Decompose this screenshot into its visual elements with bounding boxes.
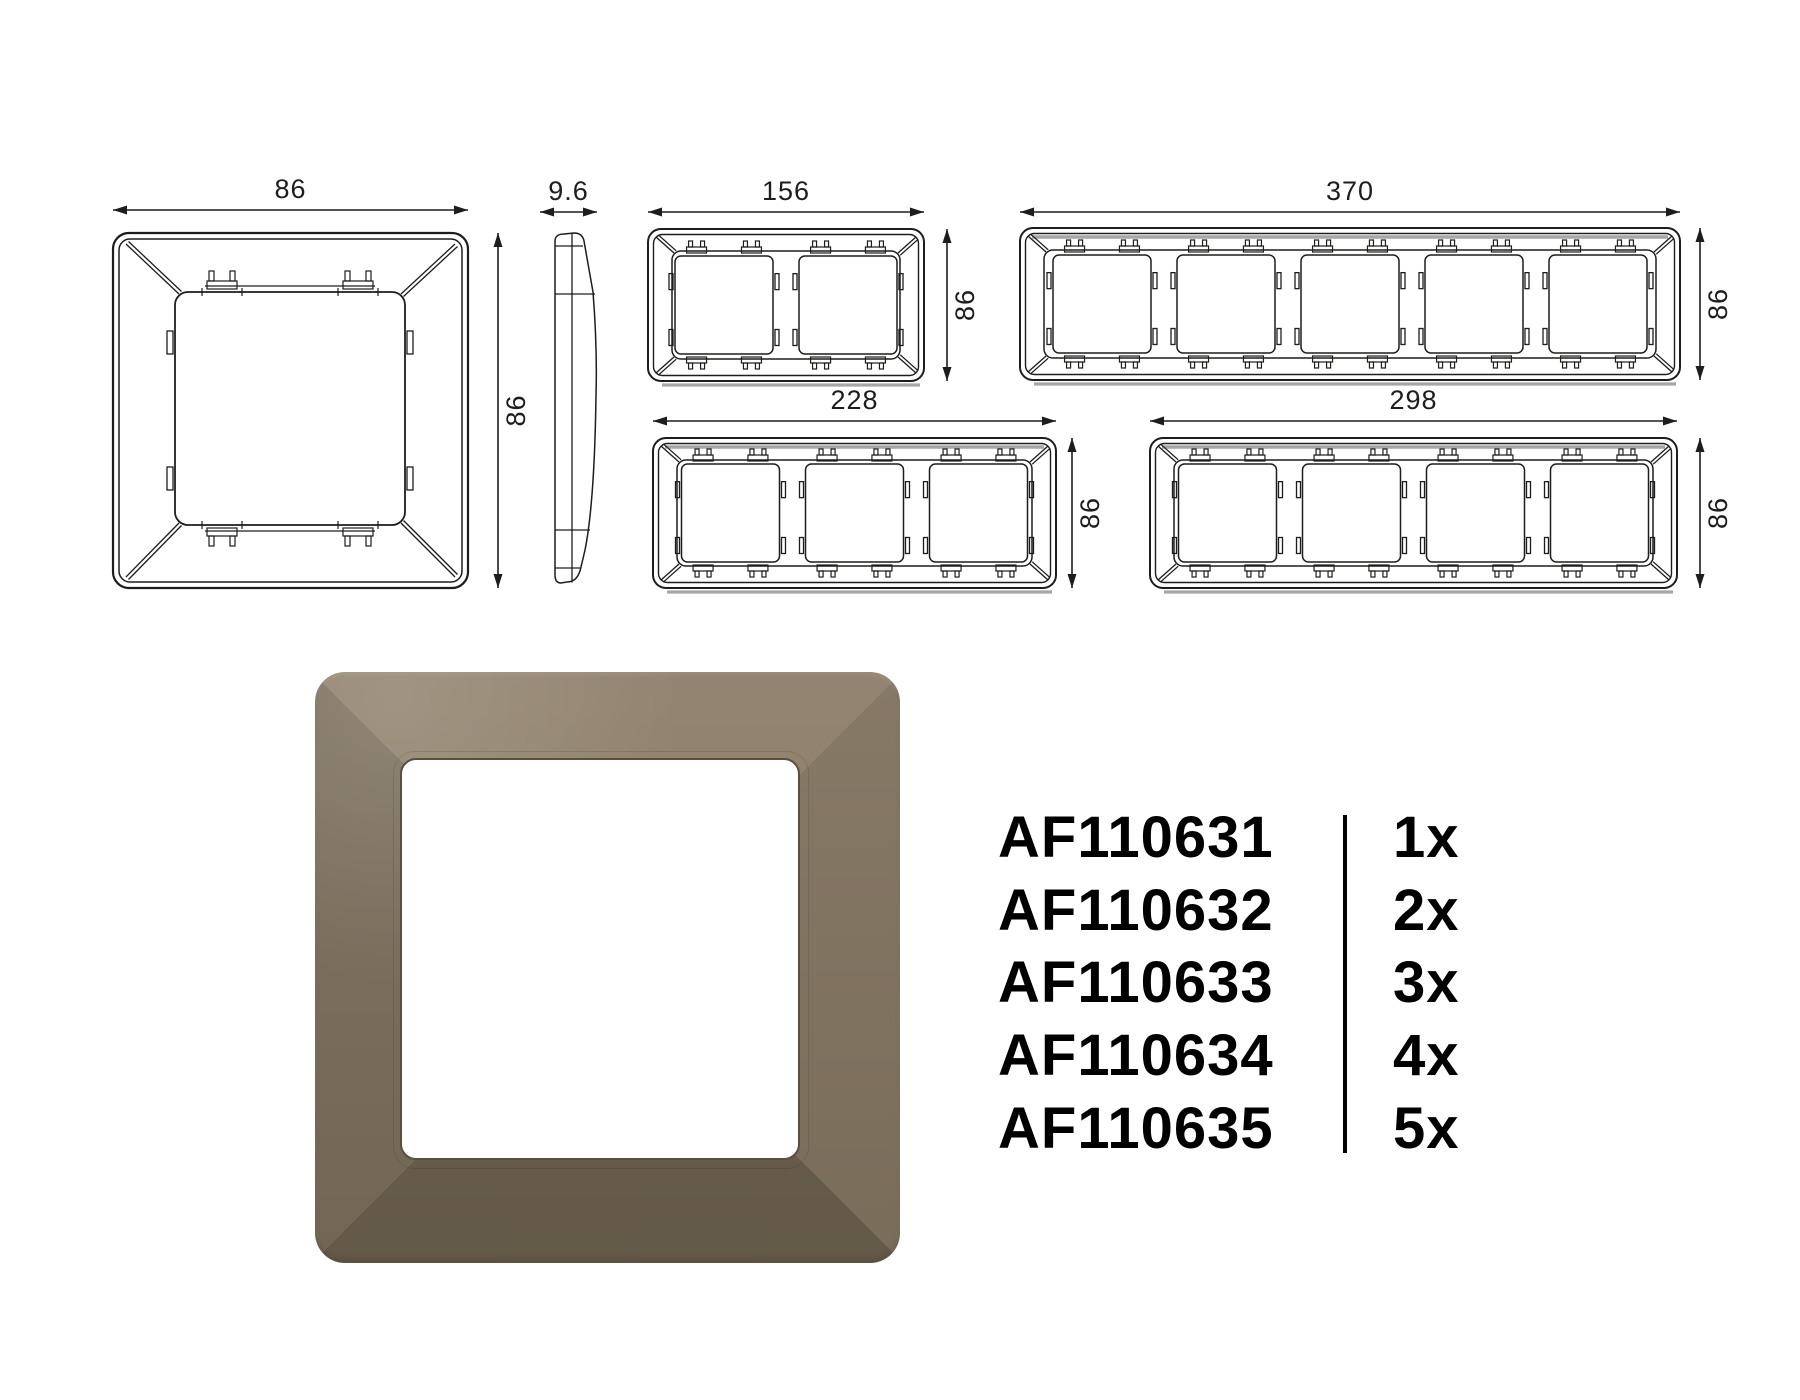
product-render-frame xyxy=(315,672,900,1263)
drawing-gang-4: 29886 xyxy=(1150,385,1733,592)
part-code: AF110632 xyxy=(998,877,1343,944)
drawing-profile-side: 9.6 xyxy=(540,176,597,583)
part-list-divider xyxy=(1343,815,1347,1153)
dimension-label: 86 xyxy=(1075,497,1105,529)
dimension-label: 370 xyxy=(1326,176,1374,206)
part-list-row: AF1106311x xyxy=(998,801,1558,874)
technical-drawings: 86869.615686370862288629886 xyxy=(0,0,1800,650)
part-code: AF110635 xyxy=(998,1095,1343,1162)
dimension-label: 86 xyxy=(1703,497,1733,529)
dimension-label: 228 xyxy=(830,385,878,415)
part-code: AF110631 xyxy=(998,804,1343,871)
part-list-row: AF1106355x xyxy=(998,1092,1558,1165)
dimension-label: 298 xyxy=(1389,385,1437,415)
part-quantity: 3x xyxy=(1343,949,1460,1016)
part-quantity: 1x xyxy=(1343,804,1460,871)
page: 86869.615686370862288629886 AF1106311xAF… xyxy=(0,0,1800,1400)
part-quantity: 2x xyxy=(1343,877,1460,944)
dimension-label: 86 xyxy=(1703,288,1733,320)
dimension-label: 86 xyxy=(950,289,980,321)
frame-window-opening xyxy=(400,758,800,1160)
part-quantity: 5x xyxy=(1343,1095,1460,1162)
dimension-label: 86 xyxy=(274,174,306,204)
drawing-gang-2: 15686 xyxy=(648,176,980,385)
part-list-row: AF1106322x xyxy=(998,874,1558,947)
dimension-label: 156 xyxy=(762,176,810,206)
part-code: AF110634 xyxy=(998,1022,1343,1089)
part-quantity: 4x xyxy=(1343,1022,1460,1089)
drawing-gang-5: 37086 xyxy=(1020,176,1733,384)
part-list: AF1106311xAF1106322xAF1106333xAF1106344x… xyxy=(998,801,1558,1165)
dimension-label: 86 xyxy=(501,394,531,426)
part-code: AF110633 xyxy=(998,949,1343,1016)
dimension-label: 9.6 xyxy=(548,176,589,206)
part-list-row: AF1106344x xyxy=(998,1019,1558,1092)
drawing-front-1gang: 8686 xyxy=(113,174,531,588)
drawing-gang-3: 22886 xyxy=(653,385,1105,592)
part-list-row: AF1106333x xyxy=(998,947,1558,1020)
